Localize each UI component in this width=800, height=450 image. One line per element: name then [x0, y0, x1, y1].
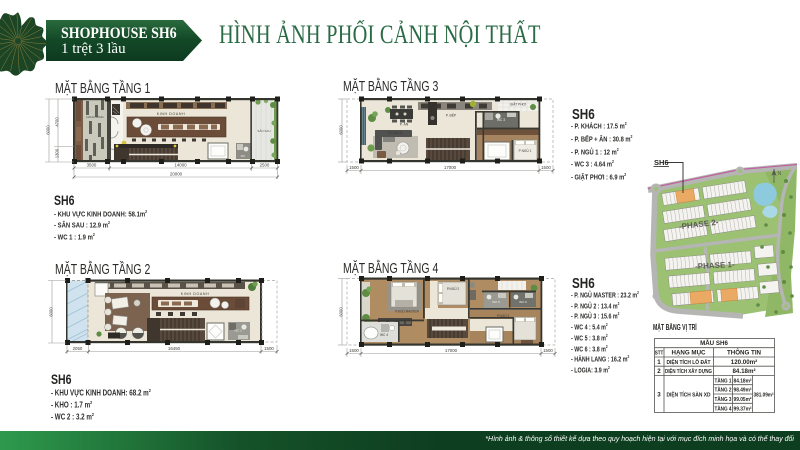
svg-text:6000: 6000: [46, 125, 51, 135]
svg-text:DIỆN TÍCH SÀN XD: DIỆN TÍCH SÀN XD: [667, 391, 711, 399]
svg-text:GIẶT PHƠI: GIẶT PHƠI: [510, 103, 526, 107]
svg-text:P.NGỦ 2: P.NGỦ 2: [447, 286, 460, 291]
svg-text:SÂN SAU: SÂN SAU: [257, 128, 270, 133]
svg-text:P NGỦ 1: P NGỦ 1: [519, 148, 532, 153]
svg-text:SH6: SH6: [654, 158, 669, 167]
svg-text:14000: 14000: [174, 163, 187, 168]
svg-text:2050: 2050: [73, 346, 83, 351]
svg-text:16450: 16450: [168, 346, 181, 351]
svg-text:HANH LANG: HANH LANG: [86, 115, 104, 119]
svg-text:WC 3: WC 3: [497, 118, 505, 122]
svg-text:P.KHÁCH: P.KHÁCH: [388, 131, 403, 135]
svg-text:6000: 6000: [339, 307, 344, 317]
svg-text:3500: 3500: [87, 163, 97, 168]
svg-text:6000: 6000: [339, 125, 344, 135]
svg-text:DIỆN TÍCH XÂY DỰNG: DIỆN TÍCH XÂY DỰNG: [665, 367, 712, 375]
svg-text:HẠNG MỤC: HẠNG MỤC: [671, 350, 706, 357]
svg-text:84.18m²: 84.18m²: [734, 378, 752, 384]
svg-text:2500: 2500: [260, 163, 270, 168]
svg-text:99.05m²: 99.05m²: [734, 397, 752, 403]
svg-text:1500: 1500: [349, 348, 359, 353]
svg-text:1: 1: [657, 359, 661, 366]
svg-text:1500: 1500: [541, 165, 551, 170]
svg-text:3: 3: [657, 392, 661, 399]
svg-text:84.18m²: 84.18m²: [732, 368, 755, 375]
svg-text:P. ĂN: P. ĂN: [400, 123, 409, 127]
svg-text:DIỆN TÍCH LÔ ĐẤT: DIỆN TÍCH LÔ ĐẤT: [667, 358, 711, 366]
svg-text:17000: 17000: [444, 165, 457, 170]
svg-text:P.NGỦ MASTER: P.NGỦ MASTER: [395, 309, 420, 314]
svg-text:98.49m²: 98.49m²: [734, 388, 752, 394]
svg-text:1500: 1500: [264, 346, 274, 351]
svg-text:TẦNG 4: TẦNG 4: [715, 405, 732, 412]
svg-text:4700: 4700: [55, 117, 60, 127]
svg-text:17000: 17000: [445, 348, 458, 353]
svg-text:WC 6: WC 6: [519, 300, 527, 304]
svg-text:1500: 1500: [543, 348, 553, 353]
svg-text:1300: 1300: [55, 148, 60, 158]
svg-text:TẦNG 3: TẦNG 3: [715, 396, 732, 403]
svg-text:KINH DOANH: KINH DOANH: [181, 292, 210, 296]
svg-text:STT: STT: [655, 350, 664, 356]
svg-text:THÔNG TIN: THÔNG TIN: [727, 349, 762, 357]
svg-text:1500: 1500: [349, 165, 359, 170]
svg-text:WC 2: WC 2: [234, 329, 242, 333]
svg-text:99.37m²: 99.37m²: [734, 406, 752, 412]
svg-text:2: 2: [657, 368, 661, 375]
svg-text:20000: 20000: [170, 172, 183, 177]
svg-text:P. BẾP: P. BẾP: [446, 113, 457, 118]
svg-text:WC: WC: [241, 154, 246, 158]
svg-text:KINH DOANH: KINH DOANH: [157, 112, 186, 116]
svg-text:120.00m²: 120.00m²: [731, 359, 758, 366]
svg-text:N: N: [778, 171, 782, 177]
svg-text:381.09m²: 381.09m²: [754, 393, 774, 399]
svg-text:6000: 6000: [49, 307, 54, 317]
svg-text:TẦNG 1: TẦNG 1: [715, 377, 732, 384]
svg-text:MẪU SH6: MẪU SH6: [700, 340, 728, 347]
svg-text:TẦNG 2: TẦNG 2: [715, 387, 732, 394]
svg-text:WC 5: WC 5: [492, 300, 500, 304]
svg-text:WC 4: WC 4: [380, 333, 388, 337]
